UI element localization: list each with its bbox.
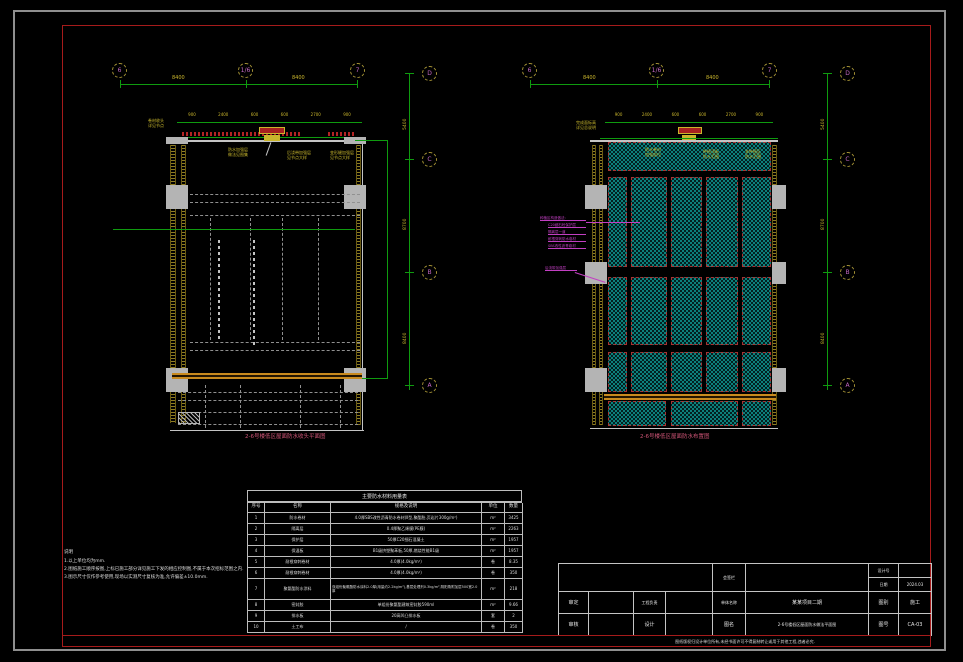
column-block xyxy=(772,368,786,392)
axis-label: B xyxy=(427,269,431,276)
note-line: 2.图纸施工顺序按图,上标已施工部分详见施工下发的相应控制图,不属于本次招标范围… xyxy=(64,566,259,574)
titleblock-blank-cell xyxy=(588,613,634,636)
column-block xyxy=(344,185,366,209)
callout-line: 隔离层一道 xyxy=(548,230,586,235)
cad-sheet: 6 1/6 7 8400 8400 D C B A 5400 8700 8400… xyxy=(0,0,963,662)
dimension-value: 600 xyxy=(281,113,289,117)
plan-edge xyxy=(590,428,778,429)
grid-bubble: 1/6 xyxy=(649,63,664,78)
dimension-value: 600 xyxy=(699,113,707,117)
grid-bubble: A xyxy=(840,378,855,393)
titleblock-blank-cell xyxy=(745,563,869,592)
table-cell: 保护层 xyxy=(265,535,331,546)
table-cell: 防水卷材 xyxy=(265,513,331,524)
table-cell: 1957 xyxy=(505,535,523,546)
dimension-value: 8400 xyxy=(706,76,719,81)
table-header: 序号 xyxy=(248,503,265,513)
red-hatch-strip xyxy=(328,132,356,136)
hatch-panel xyxy=(671,177,702,267)
notes-title: 说明 xyxy=(64,548,259,557)
detail-box xyxy=(678,127,702,134)
table-cell: m² xyxy=(482,524,505,535)
dimension-tick xyxy=(657,80,658,88)
hatch-panel xyxy=(631,277,667,345)
copyright-note: 图纸版权归设计单位所有,未经书面许可不得复制转让或用于其他工程,违者必究. xyxy=(558,636,932,647)
column-block xyxy=(585,368,607,392)
axis-label: 7 xyxy=(356,67,360,74)
grid-bubble: 1/6 xyxy=(238,63,253,78)
dimension-value: 900 xyxy=(188,113,196,117)
hatch-block xyxy=(178,412,200,424)
plan-annotation: 种植顶板 防水范围 xyxy=(703,150,719,159)
hatch-panel xyxy=(671,277,702,345)
dimension-tick xyxy=(823,73,832,74)
table-cell: 聚氨酯防水涂料 xyxy=(265,579,331,600)
dimension-row: 900 2400 600 600 2700 900 xyxy=(177,113,362,117)
titleblock-label: 图名 xyxy=(712,613,746,636)
highlight-line xyxy=(355,140,388,141)
hatch-panel xyxy=(706,352,738,392)
table-cell: 10 xyxy=(248,622,265,633)
titleblock-blank-cell xyxy=(665,591,713,614)
plan-edge xyxy=(170,430,364,431)
highlight-line xyxy=(113,229,355,230)
grid-bubble: C xyxy=(840,152,855,167)
hatch-panel xyxy=(671,401,738,426)
table-cell: 套 xyxy=(482,611,505,622)
table-cell: 50厚C20细石混凝土 xyxy=(331,535,482,546)
grid-bubble: A xyxy=(422,378,437,393)
dimension-row: 900 2400 600 600 2700 900 xyxy=(605,113,773,117)
grid-bubble: B xyxy=(840,265,855,280)
table-cell: 218 xyxy=(505,579,523,600)
plan-edge xyxy=(600,138,778,139)
column-block xyxy=(344,368,366,392)
dimension-value: 2700 xyxy=(311,113,321,117)
table-cell: 4.0厚(4.0kg/m²) xyxy=(331,568,482,579)
table-cell: 350 xyxy=(505,622,523,633)
dimension-tick xyxy=(246,80,247,88)
titleblock-value xyxy=(898,563,932,578)
titleblock-label: 图号 xyxy=(868,613,899,636)
plan-caption: 2-6号楼低区屋面防水布置图 xyxy=(640,434,709,440)
dimension-line xyxy=(177,122,362,123)
dimension-tick xyxy=(405,272,414,273)
titleblock-label: 图别 xyxy=(868,591,899,614)
dashed-line xyxy=(340,385,341,428)
table-cell: m² xyxy=(482,579,505,600)
dimension-tick xyxy=(357,80,358,88)
table-cell: 2 xyxy=(248,524,265,535)
hatch-panel xyxy=(671,352,702,392)
titleblock-label: 工程负责 xyxy=(633,591,666,614)
note-line: 3.图示尺寸仅作参考使用,现场以实测尺寸复核为准,允许偏差±10.0mm. xyxy=(64,574,259,582)
table-cell: 8 xyxy=(248,600,265,611)
leader-note: 完成面标高 详见总说明 xyxy=(576,121,596,130)
dashed-line xyxy=(210,218,211,340)
table-cell: 9 xyxy=(248,611,265,622)
table-cell: m² xyxy=(482,600,505,611)
dimension-value: 600 xyxy=(251,113,259,117)
grid-bubble: 7 xyxy=(762,63,777,78)
table-cell: m² xyxy=(482,513,505,524)
dimension-line xyxy=(409,73,410,390)
dashed-line xyxy=(190,202,360,203)
dimension-tick xyxy=(823,272,832,273)
dimension-tick xyxy=(405,159,414,160)
column-block xyxy=(166,368,188,392)
column-block xyxy=(585,185,607,209)
dimension-value: 8400 xyxy=(583,76,596,81)
grid-bubble: B xyxy=(422,265,437,280)
table-cell: 密封胶 xyxy=(265,600,331,611)
grid-bubble: 6 xyxy=(522,63,537,78)
expansion-band xyxy=(172,373,362,379)
dimension-tick xyxy=(120,80,121,88)
table-cell: 0.4厚聚乙烯膜(PE膜) xyxy=(331,524,482,535)
dimension-value: 8700 xyxy=(404,219,409,230)
table-cell: 350 xyxy=(505,568,523,579)
plan-annotation: 变形缝加强层 见节点大样 xyxy=(330,151,354,160)
axis-label: B xyxy=(845,269,849,276)
dimension-tick xyxy=(823,385,832,386)
callout-line: SBS改性沥青卷材 xyxy=(548,244,586,249)
dimension-value: 5400 xyxy=(404,119,409,130)
table-header: 规格及说明 xyxy=(331,503,482,513)
table-cell: 1957 xyxy=(505,546,523,557)
titleblock-label: 审定 xyxy=(558,591,589,614)
dimension-tick xyxy=(769,80,770,88)
hatch-panel xyxy=(706,177,738,267)
callout-line: 耐根穿刺防水卷材 xyxy=(548,237,586,242)
titleblock-label: 审核 xyxy=(558,613,589,636)
axis-label: A xyxy=(845,382,849,389)
dimension-tick xyxy=(405,385,414,386)
hatch-panel xyxy=(742,277,771,345)
detail-box xyxy=(264,135,280,141)
table-header: 名称 xyxy=(265,503,331,513)
axis-label: 1/6 xyxy=(652,67,662,74)
axis-label: 6 xyxy=(528,67,532,74)
dashed-line xyxy=(250,218,251,340)
column-block xyxy=(772,262,786,284)
table-cell: 土工布 xyxy=(265,622,331,633)
expansion-band xyxy=(604,394,776,400)
titleblock-value: 施工 xyxy=(898,591,932,614)
dimension-tick xyxy=(530,80,531,88)
axis-label: 1/6 xyxy=(241,67,251,74)
table-cell: 耐根穿刺卷材 xyxy=(265,557,331,568)
plan-caption: 2-6号楼低区屋面防水收头平面图 xyxy=(245,434,325,440)
axis-label: 6 xyxy=(118,67,122,74)
grid-bubble: 7 xyxy=(350,63,365,78)
dimension-value: 900 xyxy=(756,113,764,117)
callout-line: 种植区构造做法: xyxy=(540,216,586,221)
dimension-value: 8400 xyxy=(822,333,827,344)
dimension-value: 8400 xyxy=(292,76,305,81)
table-cell: 卷 xyxy=(482,557,505,568)
dashed-line xyxy=(190,215,360,216)
column-block xyxy=(772,185,786,209)
table-cell: 20高凹凸排水板 xyxy=(331,611,482,622)
dimension-line xyxy=(605,122,773,123)
axis-label: D xyxy=(845,70,850,77)
titleblock-company-cell xyxy=(558,563,713,592)
table-cell: 7 xyxy=(248,579,265,600)
dimension-value: 2400 xyxy=(218,113,228,117)
titleblock-value: 2-6号楼低区屋面防水做法平面图 xyxy=(745,613,869,636)
detail-box xyxy=(259,127,285,134)
highlight-line xyxy=(387,140,388,378)
axis-label: A xyxy=(427,382,431,389)
table-cell: 卷 xyxy=(482,622,505,633)
table-title: 主要防水材料用量表 xyxy=(247,490,522,502)
table-cell: 1 xyxy=(248,513,265,524)
plan-annotation: 后浇带加强层 见节点大样 xyxy=(287,151,311,160)
table-header: 单位 xyxy=(482,503,505,513)
dashed-line xyxy=(190,194,360,195)
dimension-tick xyxy=(405,73,414,74)
callout-line: 后浇带加强层 xyxy=(545,266,577,271)
dimension-line xyxy=(530,84,770,85)
titleblock-stamp-cell: 会签栏 xyxy=(712,563,746,592)
chain-line xyxy=(253,240,255,345)
chain-line xyxy=(218,240,220,340)
dimension-value: 8700 xyxy=(822,219,827,230)
titleblock-blank-cell xyxy=(665,613,713,636)
materials-table: 序号名称规格及说明单位数量 1防水卷材4.0厚SBS改性沥青防水卷材(Ⅱ型,聚酯… xyxy=(247,502,522,633)
dimension-value: 900 xyxy=(343,113,351,117)
axis-label: D xyxy=(427,70,432,77)
table-cell: 4.0厚(4.0kg/m²) xyxy=(331,557,482,568)
column-block xyxy=(166,185,188,209)
table-cell: m² xyxy=(482,535,505,546)
titleblock-label: 设计 xyxy=(633,613,666,636)
table-cell: 2 xyxy=(505,611,523,622)
table-cell: 耐根穿刺卷材 xyxy=(265,568,331,579)
plan-annotation: 非种植区 防水范围 xyxy=(745,150,761,159)
table-cell: 单组份聚氨酯建筑密封胶590ml xyxy=(331,600,482,611)
axis-label: C xyxy=(427,156,431,163)
dimension-value: 8400 xyxy=(404,333,409,344)
notes-block: 说明 1.以上单位均为mm. 2.图纸施工顺序按图,上标已施工部分详见施工下发的… xyxy=(64,548,259,582)
table-cell: 4.0厚SBS改性沥青防水卷材(Ⅱ型,聚酯胎,页岩片300g/m²) xyxy=(331,513,482,524)
plan-annotation: 防水加强层 做法见图集 xyxy=(228,148,248,157)
table-cell: 3425 xyxy=(505,513,523,524)
hatch-panel xyxy=(742,352,771,392)
grid-bubble: D xyxy=(840,66,855,81)
hatch-panel xyxy=(608,352,627,392)
table-cell: 2263 xyxy=(505,524,523,535)
hatch-panel xyxy=(742,401,771,426)
dashed-line xyxy=(205,385,206,428)
titleblock-label: 设计号 xyxy=(868,563,899,578)
dimension-value: 8400 xyxy=(172,76,185,81)
dashed-line xyxy=(300,385,301,428)
dashed-line xyxy=(190,342,360,343)
dimension-tick xyxy=(823,159,832,160)
hatch-panel xyxy=(608,401,666,426)
dimension-value: 600 xyxy=(672,113,680,117)
titleblock-value: 某某项目二期 xyxy=(745,591,869,614)
table-cell: 卷 xyxy=(482,568,505,579)
table-cell: B1级挤塑聚苯板,50厚,燃烧性能B1级 xyxy=(331,546,482,557)
table-cell: 双组份聚氨酯防水涂料2.0厚(用量约2.2kg/m²),基层处理剂0.3kg/m… xyxy=(331,579,482,600)
grid-bubble: C xyxy=(422,152,437,167)
dashed-line xyxy=(318,218,319,340)
dimension-line xyxy=(827,73,828,390)
dimension-value: 2700 xyxy=(726,113,736,117)
dashed-line xyxy=(240,385,241,428)
table-cell: 隔离层 xyxy=(265,524,331,535)
hatch-panel xyxy=(608,277,627,345)
table-cell: m² xyxy=(482,546,505,557)
titleblock-label: 单体名称 xyxy=(712,591,746,614)
dimension-value: 2400 xyxy=(642,113,652,117)
table-cell: 3 xyxy=(248,535,265,546)
column-block xyxy=(166,137,188,144)
table-cell: 9.66 xyxy=(505,600,523,611)
dimension-value: 900 xyxy=(615,113,623,117)
plan-annotation: 防水卷材 加强部位 xyxy=(645,148,661,157)
grid-bubble: D xyxy=(422,66,437,81)
note-line: 1.以上单位均为mm. xyxy=(64,557,259,566)
grid-bubble: 6 xyxy=(112,63,127,78)
table-cell: 保温板 xyxy=(265,546,331,557)
titleblock-blank-cell xyxy=(588,591,634,614)
callout-line: C20细石砼保护层 xyxy=(548,223,586,228)
leader-line xyxy=(586,222,640,223)
leader-note: 卷材收头 详见节点 xyxy=(148,119,164,128)
hatch-panel xyxy=(706,277,738,345)
dimension-value: 5400 xyxy=(822,119,827,130)
table-cell: 排水板 xyxy=(265,611,331,622)
axis-label: 7 xyxy=(768,67,772,74)
dimension-line xyxy=(120,84,358,85)
table-cell: / xyxy=(331,622,482,633)
hatch-panel xyxy=(742,177,771,267)
dashed-line xyxy=(190,350,360,351)
titleblock-label: 日期 xyxy=(868,577,899,592)
table-cell: 8.35 xyxy=(505,557,523,568)
titleblock-value: 2024.03 xyxy=(898,577,932,592)
titleblock-value: CA-03 xyxy=(898,613,932,636)
axis-label: C xyxy=(845,156,849,163)
hatch-panel xyxy=(631,352,667,392)
table-header: 数量 xyxy=(505,503,523,513)
dashed-line xyxy=(282,218,283,340)
